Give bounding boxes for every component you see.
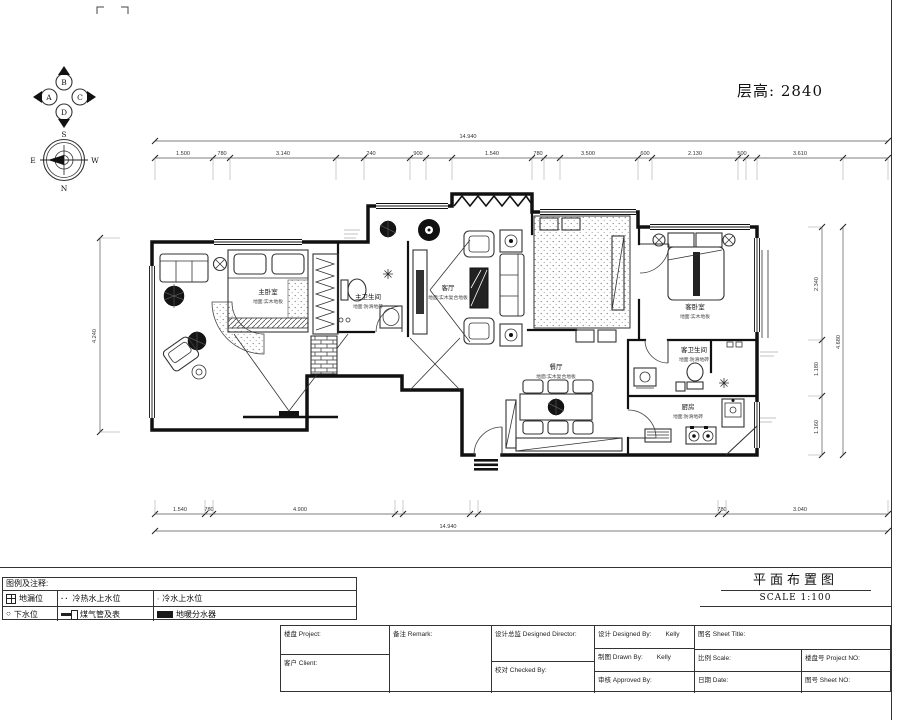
drain-icon: ○ bbox=[6, 610, 11, 618]
ceiling-lamp-icon bbox=[383, 269, 393, 279]
drawing-title: 平面布置图 bbox=[721, 566, 871, 591]
gas-pipe-meter-icon bbox=[61, 613, 73, 616]
tb-designed-director: 设计总监 Designed Director: bbox=[491, 626, 594, 661]
title-block: 楼盘 Project: 客户 Client: 备注 Remark: 设计总监 D… bbox=[280, 625, 891, 692]
label-guest-bath: 客卫生间 bbox=[681, 345, 707, 354]
legend-item: ∙∙ 冷热水上水位 bbox=[57, 591, 153, 606]
sofa-icon bbox=[500, 254, 524, 316]
svg-text:地面:实木复合地板: 地面:实木复合地板 bbox=[536, 373, 576, 380]
tb-remark: 备注 Remark: bbox=[389, 626, 491, 693]
entry-threshold-icon bbox=[474, 459, 498, 471]
compass-e: E bbox=[30, 156, 35, 165]
downlight-icon bbox=[214, 258, 227, 271]
vent-grille-icon bbox=[645, 429, 671, 442]
legend-item: 煤气管及表 bbox=[57, 606, 153, 621]
tb-sheet-title: 图名 Sheet Title: bbox=[694, 626, 890, 649]
svg-text:4.240: 4.240 bbox=[92, 329, 98, 343]
side-table-lamp-icon bbox=[500, 230, 522, 252]
compass-w: W bbox=[91, 156, 99, 165]
flower-icon bbox=[192, 365, 206, 379]
axis-label-a: A bbox=[45, 93, 52, 102]
floor-drain-icon bbox=[6, 594, 16, 604]
armchair-icon bbox=[464, 231, 494, 257]
flue-zigzag-icon bbox=[454, 196, 531, 206]
downlight-icon bbox=[723, 234, 735, 246]
drawing-title-box: 平面布置图 SCALE 1:100 bbox=[700, 566, 891, 607]
svg-text:地面:防滑地砖: 地面:防滑地砖 bbox=[353, 303, 383, 310]
svg-text:地面:防滑地砖: 地面:防滑地砖 bbox=[679, 356, 709, 363]
stove-icon bbox=[686, 426, 716, 444]
svg-text:2.340: 2.340 bbox=[814, 277, 820, 291]
designed-by-value: Kelly bbox=[665, 631, 679, 638]
tb-checked-by: 校对 Checked By: bbox=[491, 661, 594, 693]
svg-text:780: 780 bbox=[533, 151, 542, 157]
centerpiece-plant-icon bbox=[548, 398, 564, 416]
hall-floor-lines bbox=[410, 338, 460, 390]
svg-text:4.680: 4.680 bbox=[836, 335, 842, 349]
coffee-table-icon bbox=[470, 268, 488, 308]
hot-cold-water-icon: ∙∙ bbox=[61, 595, 69, 603]
dim-top-overall: 14.940 bbox=[152, 134, 891, 144]
dim-right: 2.340 1.180 1.160 bbox=[808, 224, 825, 458]
tb-designed-by: 设计 Designed By:Kelly bbox=[594, 626, 694, 648]
tb-drawn-by: 制图 Drawn By:Kelly bbox=[594, 648, 694, 671]
compass-s: S bbox=[61, 130, 66, 139]
dim-top: 1.500 780 3.140 240 900 1.540 780 3.500 … bbox=[152, 151, 891, 180]
carpet-area bbox=[534, 216, 630, 342]
svg-text:900: 900 bbox=[413, 151, 422, 157]
svg-text:1.540: 1.540 bbox=[485, 151, 499, 157]
svg-text:3.040: 3.040 bbox=[793, 507, 807, 513]
svg-text:780: 780 bbox=[217, 151, 226, 157]
tb-date: 日期 Date: bbox=[694, 671, 801, 693]
small-sink-icon bbox=[676, 382, 685, 391]
svg-text:地面:实木地板: 地面:实木地板 bbox=[680, 313, 710, 320]
dim-left: 4.240 bbox=[92, 235, 120, 435]
label-master-bedroom: 主卧室 bbox=[258, 287, 278, 296]
svg-text:1.500: 1.500 bbox=[176, 151, 190, 157]
low-cabinet-icon bbox=[516, 438, 622, 451]
svg-text:3.500: 3.500 bbox=[581, 151, 595, 157]
svg-text:地面:实木复合地板: 地面:实木复合地板 bbox=[428, 294, 468, 301]
legend-item: 地暖分水器 bbox=[153, 606, 356, 621]
washing-machine-icon bbox=[634, 368, 656, 388]
svg-text:1.160: 1.160 bbox=[814, 420, 820, 434]
label-kitchen: 厨房 bbox=[682, 402, 695, 411]
tb-approved-by: 审核 Approved By: bbox=[594, 671, 694, 693]
side-table-lamp-icon bbox=[500, 324, 522, 346]
svg-text:3.140: 3.140 bbox=[276, 151, 290, 157]
floor-height-note: 层高: 2840 bbox=[737, 80, 823, 101]
label-dining: 餐厅 bbox=[550, 362, 564, 371]
living-furniture bbox=[464, 230, 524, 346]
label-living: 客厅 bbox=[442, 283, 456, 292]
plant-icon bbox=[164, 284, 184, 308]
legend-item: ○ 下水位 bbox=[3, 606, 57, 621]
svg-text:780: 780 bbox=[204, 507, 213, 513]
label-guest-bedroom: 客卧室 bbox=[685, 302, 705, 311]
axis-label-b: B bbox=[61, 78, 67, 87]
drawing-sheet: A B C D S N E W bbox=[0, 0, 900, 720]
tb-project: 楼盘 Project: bbox=[281, 626, 389, 654]
legend-title: 图例及注释: bbox=[3, 578, 356, 591]
dim-right-overall: 4.680 bbox=[836, 224, 846, 458]
svg-text:4.900: 4.900 bbox=[293, 507, 307, 513]
kitchen-sink-icon bbox=[722, 399, 744, 427]
tb-project-no: 楼盘号 Project NO: bbox=[801, 649, 890, 671]
ceiling-lamp-icon bbox=[719, 378, 729, 388]
axis-label-c: C bbox=[77, 93, 83, 102]
toilet-icon bbox=[687, 363, 703, 389]
svg-text:14.940: 14.940 bbox=[439, 524, 456, 530]
axis-bubbles-icon: A B C D bbox=[33, 66, 96, 128]
drawing-scale: SCALE 1:100 bbox=[700, 591, 891, 607]
sheet-right-border bbox=[891, 0, 892, 720]
floor-heating-manifold-icon bbox=[157, 611, 173, 618]
dim-bottom: 1.540 780 4.900 780 3.040 bbox=[152, 500, 891, 517]
sideboard-icon bbox=[506, 400, 516, 448]
svg-text:1.180: 1.180 bbox=[814, 362, 820, 376]
plant-icon bbox=[380, 220, 396, 238]
svg-text:地面:实木地板: 地面:实木地板 bbox=[253, 298, 283, 305]
svg-text:2.130: 2.130 bbox=[688, 151, 702, 157]
label-master-bath: 主卫生间 bbox=[355, 292, 381, 301]
tb-sheet-no: 图号 Sheet NO: bbox=[801, 671, 890, 693]
legend-item: 地漏位 bbox=[3, 591, 57, 606]
svg-text:3.610: 3.610 bbox=[793, 151, 807, 157]
legend-item: ∙ 冷水上水位 bbox=[153, 591, 356, 606]
master-bath-fixtures bbox=[339, 230, 402, 328]
brick-pier bbox=[311, 336, 337, 374]
foyer-decor bbox=[380, 219, 440, 241]
dim-bottom-overall: 14.940 bbox=[152, 524, 891, 534]
tb-scale: 比例 Scale: bbox=[694, 649, 801, 671]
sink-icon bbox=[380, 306, 402, 328]
dining-furniture bbox=[506, 380, 622, 451]
drawn-by-value: Kelly bbox=[657, 654, 671, 661]
svg-text:1.540: 1.540 bbox=[173, 507, 187, 513]
legend-box: 图例及注释: 地漏位 ∙∙ 冷热水上水位 ∙ 冷水上水位 ○ 下水位 煤气管及表… bbox=[2, 577, 357, 620]
guest-bed bbox=[653, 233, 735, 300]
axis-label-d: D bbox=[61, 108, 67, 117]
svg-text:780: 780 bbox=[717, 507, 726, 513]
compass-n: N bbox=[61, 184, 68, 193]
svg-text:地面:防滑地砖: 地面:防滑地砖 bbox=[673, 413, 703, 420]
cold-water-icon: ∙ bbox=[157, 595, 159, 603]
wardrobe bbox=[313, 254, 338, 334]
svg-text:600: 600 bbox=[640, 151, 649, 157]
compass-icon: S N E W bbox=[30, 130, 99, 193]
svg-text:500: 500 bbox=[737, 151, 746, 157]
svg-text:240: 240 bbox=[366, 151, 375, 157]
basin-icon bbox=[418, 219, 440, 241]
svg-text:14.940: 14.940 bbox=[459, 134, 476, 140]
tb-client: 客户 Client: bbox=[281, 654, 389, 693]
sheet-corner-marks-icon bbox=[97, 7, 128, 14]
